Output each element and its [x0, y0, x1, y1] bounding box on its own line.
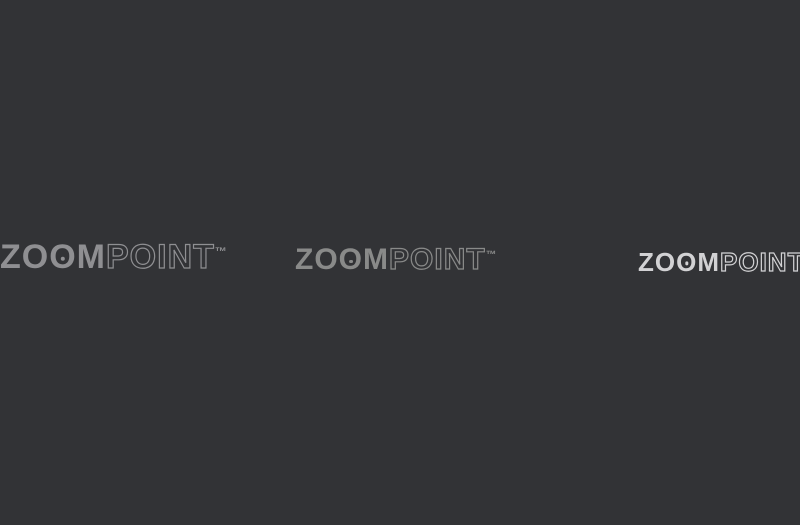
floorplan-isometric-render — [0, 0, 800, 525]
screenshot-root: ZOOMPOINT™ ZOOMPOINT™ ZOOMPOINT™ — [0, 0, 800, 525]
